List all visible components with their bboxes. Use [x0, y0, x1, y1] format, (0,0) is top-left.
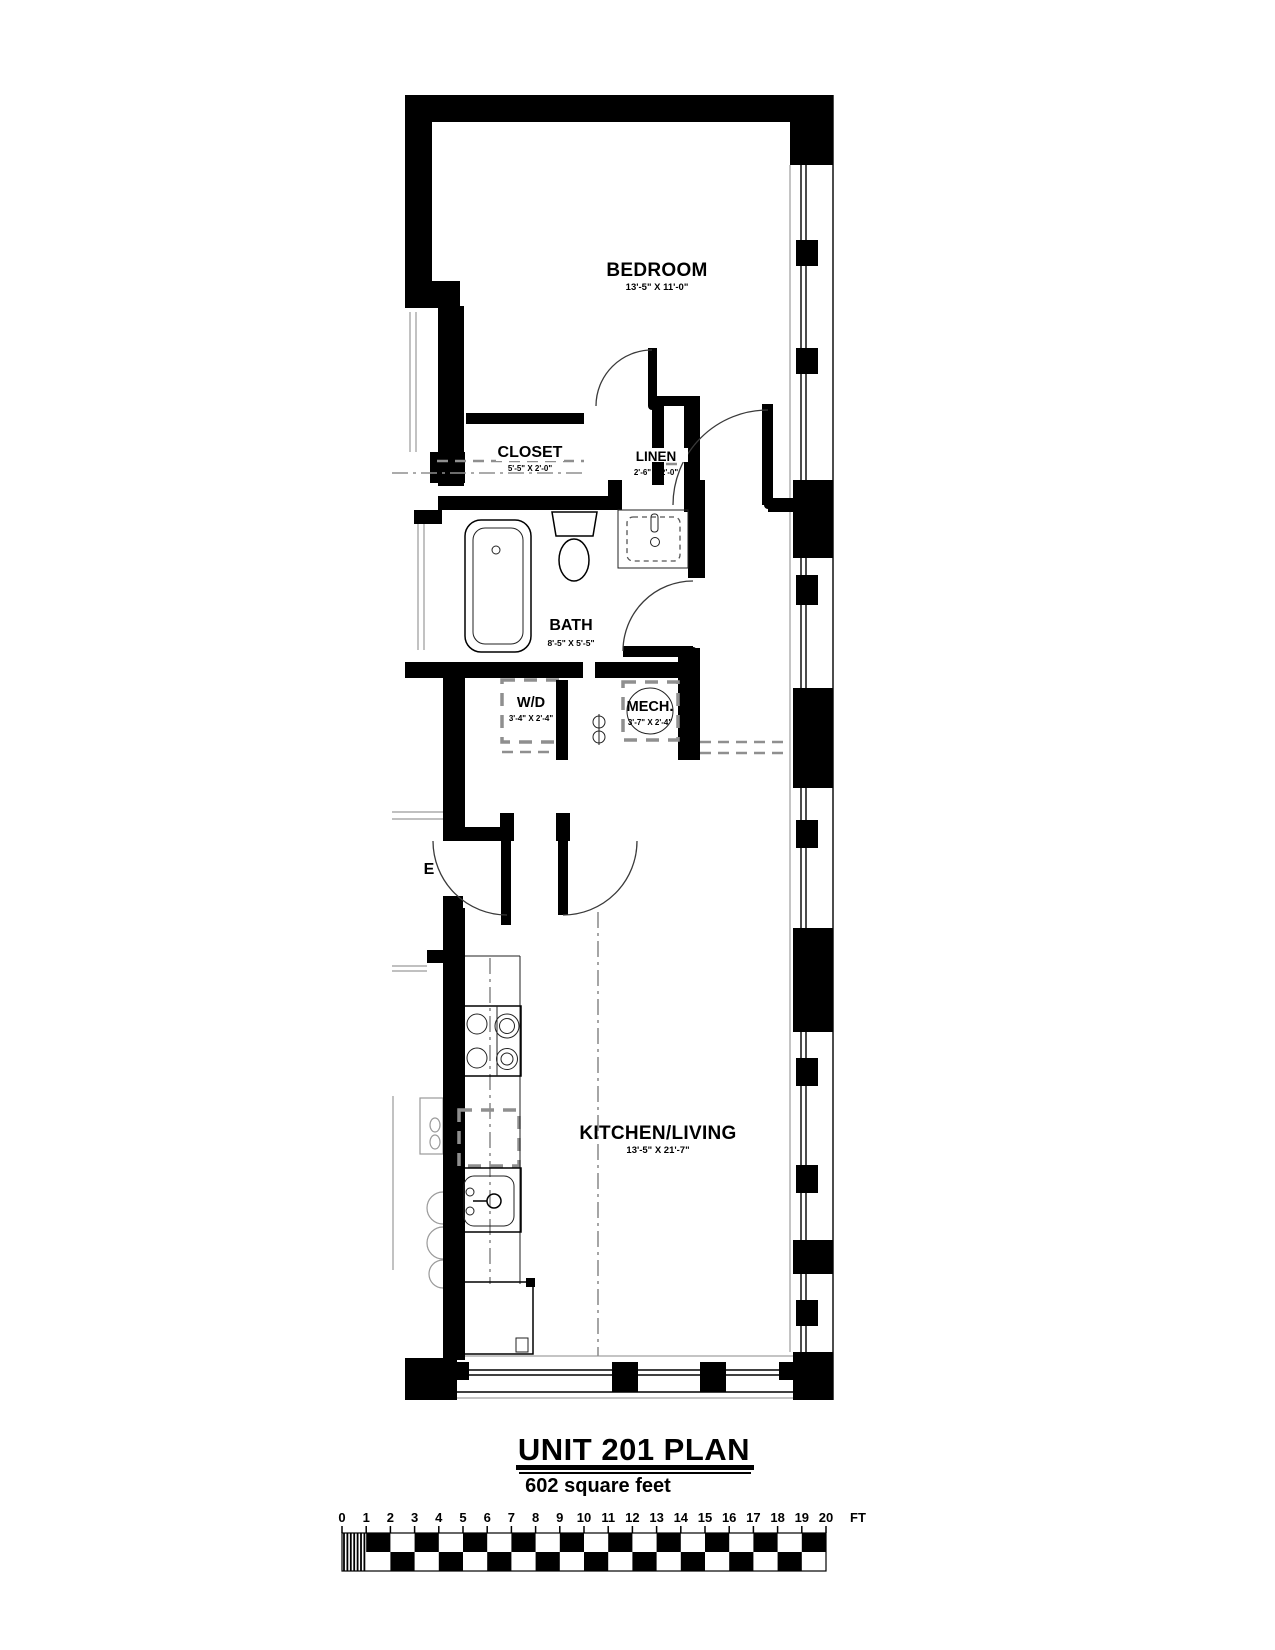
- room-label-kitchen-living: KITCHEN/LIVING: [579, 1123, 736, 1144]
- walls: [405, 95, 833, 1400]
- bathtub: [465, 520, 531, 652]
- entry-jamb-right: [556, 813, 570, 841]
- window-mullion: [796, 240, 818, 266]
- bottom-left-pier: [405, 1358, 457, 1400]
- bath-top-wall: [438, 496, 608, 510]
- scale-tick-label: 5: [459, 1510, 466, 1525]
- scale-checker-square: [439, 1552, 463, 1571]
- range: [457, 1006, 521, 1076]
- window-mullion: [796, 1058, 818, 1086]
- scale-checker-square: [705, 1533, 729, 1552]
- bedroom-door-swing: [596, 350, 652, 406]
- scale-checker-square: [729, 1552, 753, 1571]
- hall-closet-door-swing: [563, 841, 637, 915]
- scale-tick-label: 6: [484, 1510, 491, 1525]
- bottom-window-mullion: [612, 1362, 638, 1392]
- scale-checker-square: [511, 1533, 535, 1552]
- bottom-window-end: [457, 1362, 469, 1380]
- scale-tick-label: 14: [674, 1510, 689, 1525]
- window-mullion: [796, 1300, 818, 1326]
- bath-jamb: [608, 480, 622, 510]
- floor-plan-drawing: BEDROOM 13'-5" X 11'-0" CLOSET 5'-5" X 2…: [0, 0, 1275, 1650]
- burner: [495, 1014, 519, 1038]
- scale-tick-label: 16: [722, 1510, 736, 1525]
- scale-checker-square: [487, 1552, 511, 1571]
- scale-checker-square: [632, 1552, 656, 1571]
- burner: [467, 1048, 487, 1068]
- window-pier: [793, 1240, 833, 1274]
- fridge-door-mark: [516, 1338, 528, 1352]
- scale-bar: FT 01234567891011121314151617181920: [338, 1510, 866, 1571]
- mech-right-wall: [678, 648, 700, 760]
- bedroom-door-leaf: [648, 348, 657, 406]
- vanity-drain: [651, 538, 660, 547]
- room-label-bath: BATH: [549, 617, 592, 634]
- window-pier: [793, 688, 833, 788]
- bath-bottom-wall-left: [405, 662, 583, 678]
- room-dims-bedroom: 13'-5" X 11'-0": [626, 282, 689, 293]
- scale-checker-square: [584, 1552, 608, 1571]
- floor-plan-page: BEDROOM 13'-5" X 11'-0" CLOSET 5'-5" X 2…: [0, 0, 1275, 1650]
- kitchen-sink: [464, 1176, 514, 1226]
- kitchen-left-wall: [443, 908, 465, 1360]
- scale-tick-label: 3: [411, 1510, 418, 1525]
- window-mullion: [796, 575, 818, 605]
- scale-checker-square: [560, 1533, 584, 1552]
- room-label-mech: MECH.: [627, 699, 674, 715]
- room-label-wd: W/D: [517, 695, 545, 711]
- scale-tick-label: 9: [556, 1510, 563, 1525]
- bottom-window-mullion: [700, 1362, 726, 1392]
- scale-tick-label: 19: [795, 1510, 809, 1525]
- scale-tick-label: 10: [577, 1510, 591, 1525]
- room-label-linen: LINEN: [636, 449, 677, 464]
- left-wall-upper: [405, 95, 432, 308]
- burner: [497, 1049, 518, 1070]
- room-dims-closet: 5'-5" X 2'-0": [508, 464, 553, 473]
- scale-tick-label: 20: [819, 1510, 833, 1525]
- toilet-tank: [552, 512, 597, 536]
- vanity-sink: [627, 517, 680, 561]
- scale-tick-label: 8: [532, 1510, 539, 1525]
- scale-tick-label: 17: [746, 1510, 760, 1525]
- title-block: UNIT 201 PLAN 602 square feet: [516, 1432, 754, 1497]
- hall-door-leaf: [762, 404, 773, 505]
- scale-checker-square: [608, 1533, 632, 1552]
- scale-tick-label: 12: [625, 1510, 639, 1525]
- entry-door-leaf: [501, 841, 511, 925]
- window-mullion: [796, 348, 818, 374]
- room-dims-bath: 8'-5" X 5'-5": [547, 638, 594, 648]
- sink-drain: [487, 1194, 501, 1208]
- bottom-window-end: [779, 1362, 793, 1380]
- scale-tick-label: 7: [508, 1510, 515, 1525]
- refrigerator: [457, 1282, 533, 1354]
- scale-tick-label: 0: [338, 1510, 345, 1525]
- title-underline-thin: [519, 1472, 751, 1474]
- mech-door-leaf: [556, 680, 568, 760]
- top-wall: [405, 95, 833, 122]
- scale-checker-square: [657, 1533, 681, 1552]
- room-dims-linen: 2'-6" X 2'-0": [634, 468, 679, 477]
- room-label-closet: CLOSET: [498, 444, 563, 461]
- entry-jamb-left: [500, 813, 514, 841]
- entry-wall: [443, 827, 500, 841]
- scale-tick-label: 18: [770, 1510, 784, 1525]
- dishwasher-box: [459, 1110, 519, 1166]
- room-dims-kitchen-living: 13'-5" X 21'-7": [626, 1145, 689, 1156]
- scale-checker-square: [753, 1533, 777, 1552]
- room-label-bedroom: BEDROOM: [606, 260, 707, 281]
- bath-left-stub: [414, 510, 442, 524]
- scale-checker-square: [415, 1533, 439, 1552]
- plan-area-subtitle: 602 square feet: [525, 1475, 671, 1497]
- scale-checker-square: [778, 1552, 802, 1571]
- scale-tick-label: 13: [649, 1510, 663, 1525]
- room-dims-mech: 3'-7" X 2'-4": [628, 718, 673, 727]
- closet-jamb: [448, 398, 464, 416]
- burner: [467, 1014, 487, 1034]
- toilet-bowl: [559, 539, 589, 581]
- window-mullion: [796, 820, 818, 848]
- bath-right-wall: [688, 480, 705, 578]
- sink-faucet: [466, 1188, 474, 1196]
- window-pier: [793, 480, 833, 558]
- scale-checker-square: [681, 1552, 705, 1571]
- title-underline-thick: [516, 1465, 754, 1470]
- window-mullion: [796, 1165, 818, 1193]
- bath-door-swing: [623, 581, 693, 651]
- left-wall-lower: [443, 678, 465, 827]
- scale-checker-square: [802, 1533, 826, 1552]
- left-wall-stub: [405, 281, 460, 308]
- window-pier: [793, 928, 833, 1032]
- kitchen-fixtures: [457, 956, 535, 1354]
- scale-unit-label: FT: [850, 1510, 866, 1525]
- entry-label: E: [424, 861, 435, 878]
- scale-checker-square: [463, 1533, 487, 1552]
- room-dims-wd: 3'-4" X 2'-4": [509, 714, 554, 723]
- bottom-right-corner-pier: [793, 1352, 833, 1400]
- scale-tick-label: 2: [387, 1510, 394, 1525]
- hall-closet-door-leaf: [558, 841, 568, 915]
- scale-tick-label: 11: [601, 1510, 615, 1525]
- washer-dryer-box: [502, 680, 563, 742]
- plan-title: UNIT 201 PLAN: [518, 1432, 750, 1467]
- scale-checker-square: [390, 1552, 414, 1571]
- top-right-corner-pier: [790, 95, 833, 165]
- scale-tick-label: 1: [363, 1510, 370, 1525]
- bath-door-leaf: [623, 646, 693, 657]
- scale-checker-square: [536, 1552, 560, 1571]
- corridor-wall-stub: [427, 950, 460, 963]
- scale-tick-label: 4: [435, 1510, 443, 1525]
- closet-left-block: [430, 452, 465, 483]
- closet-header-wall: [466, 413, 584, 424]
- scale-checker-square: [366, 1533, 390, 1552]
- tub-drain: [492, 546, 500, 554]
- scale-tick-label: 15: [698, 1510, 712, 1525]
